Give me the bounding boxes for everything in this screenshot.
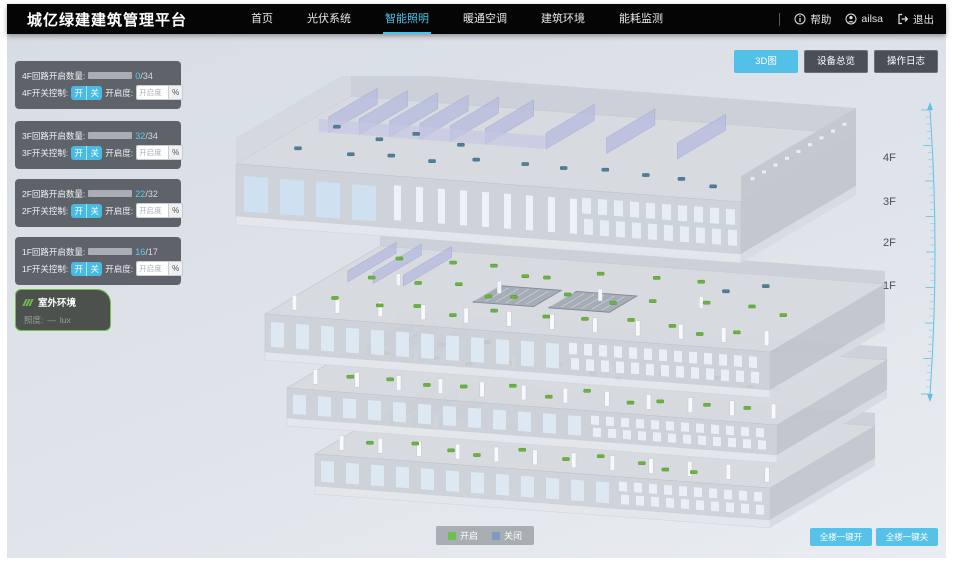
degree-group: %	[136, 85, 183, 100]
leaf-icon	[24, 298, 34, 306]
degree-group: %	[136, 145, 183, 160]
switch-on-button[interactable]: 开	[71, 146, 86, 160]
help-label: 帮助	[810, 12, 831, 27]
floor-scale-slider[interactable]	[915, 100, 943, 404]
main-nav: 首页 光伏系统 智能照明 暖通空调 建筑环境 能耗监测	[249, 4, 665, 34]
floor-label-4f: 4F	[883, 152, 896, 164]
switch-off-button[interactable]: 关	[86, 204, 102, 218]
outdoor-env-title: 室外环境	[38, 295, 76, 309]
open-degree-input[interactable]	[137, 146, 168, 159]
header-right: 帮助 ailsa 退出	[779, 12, 934, 27]
circuit-count-label: 4F回路开启数量:	[22, 70, 85, 82]
percent-button[interactable]: %	[168, 262, 182, 275]
switch-on-button[interactable]: 开	[71, 204, 86, 218]
open-degree-input[interactable]	[137, 204, 168, 217]
app-window: 城亿绿建建筑管理平台 首页 光伏系统 智能照明 暖通空调 建筑环境 能耗监测 帮…	[7, 4, 946, 558]
view-btn-device-overview[interactable]: 设备总览	[804, 50, 868, 73]
user-name: ailsa	[861, 13, 883, 25]
switch-group: 开 关	[71, 146, 102, 160]
app-title: 城亿绿建建筑管理平台	[27, 9, 187, 30]
user-menu[interactable]: ailsa	[845, 13, 883, 25]
light-status-legend: 开启 关闭	[436, 526, 534, 545]
nav-item-pv-system[interactable]: 光伏系统	[305, 4, 353, 34]
circuit-count-value: 22/32	[135, 189, 158, 199]
nav-item-smart-lighting[interactable]: 智能照明	[383, 4, 431, 34]
switch-on-button[interactable]: 开	[71, 262, 86, 276]
switch-control-label: 4F开关控制:	[22, 87, 68, 99]
open-degree-label: 开启度:	[105, 87, 133, 99]
circuit-count-label: 3F回路开启数量:	[22, 130, 85, 142]
logout-icon	[897, 13, 909, 25]
nav-item-hvac[interactable]: 暖通空调	[461, 4, 509, 34]
switch-on-button[interactable]: 开	[71, 86, 86, 100]
switch-group: 开 关	[71, 204, 102, 218]
main-content: 3D图 设备总览 操作日志 4F回路开启数量: 0/34 4F开关控制: 开 关…	[7, 34, 946, 558]
open-degree-label: 开启度:	[105, 263, 133, 275]
circuit-count-label: 1F回路开启数量:	[22, 246, 85, 258]
floor-label-1f: 1F	[883, 280, 896, 292]
switch-off-button[interactable]: 关	[86, 86, 102, 100]
legend-off-label: 关闭	[504, 529, 522, 542]
percent-button[interactable]: %	[168, 204, 182, 217]
nav-item-home[interactable]: 首页	[249, 4, 275, 34]
user-avatar-icon	[845, 13, 857, 25]
circuit-progress-bar	[88, 132, 132, 139]
legend-on-label: 开启	[460, 529, 478, 542]
open-degree-label: 开启度:	[105, 205, 133, 217]
all-off-button[interactable]: 全楼一键关	[876, 528, 938, 546]
switch-group: 开 关	[71, 262, 102, 276]
legend-off-swatch	[492, 532, 500, 540]
open-degree-input[interactable]	[137, 262, 168, 275]
percent-button[interactable]: %	[168, 86, 182, 99]
open-degree-label: 开启度:	[105, 147, 133, 159]
legend-item-off: 关闭	[492, 529, 522, 542]
floor-label-2f: 2F	[883, 237, 896, 249]
switch-off-button[interactable]: 关	[86, 146, 102, 160]
nav-item-building-env[interactable]: 建筑环境	[539, 4, 587, 34]
circuit-count-label: 2F回路开启数量:	[22, 188, 85, 200]
floor-panel-3f: 3F回路开启数量: 32/34 3F开关控制: 开 关 开启度: %	[15, 121, 181, 169]
floor-label-3f: 3F	[883, 196, 896, 208]
all-on-button[interactable]: 全楼一键开	[810, 528, 872, 546]
floor-panel-2f: 2F回路开启数量: 22/32 2F开关控制: 开 关 开启度: %	[15, 179, 181, 227]
help-button[interactable]: 帮助	[794, 12, 831, 27]
floor-panel-4f: 4F回路开启数量: 0/34 4F开关控制: 开 关 开启度: %	[15, 61, 181, 109]
degree-group: %	[136, 203, 183, 218]
view-btn-operation-log[interactable]: 操作日志	[874, 50, 938, 73]
degree-group: %	[136, 261, 183, 276]
bulk-buttons: 全楼一键开 全楼一键关	[810, 528, 938, 546]
legend-item-on: 开启	[448, 529, 478, 542]
switch-control-label: 3F开关控制:	[22, 147, 68, 159]
floor-panel-1f: 1F回路开启数量: 16/17 1F开关控制: 开 关 开启度: %	[15, 237, 181, 285]
circuit-progress-bar	[88, 190, 132, 197]
switch-group: 开 关	[71, 86, 102, 100]
illuminance-unit: lux	[60, 315, 71, 325]
view-btn-3d[interactable]: 3D图	[734, 50, 798, 73]
circuit-count-value: 0/34	[135, 71, 153, 81]
open-degree-input[interactable]	[137, 86, 168, 99]
header: 城亿绿建建筑管理平台 首页 光伏系统 智能照明 暖通空调 建筑环境 能耗监测 帮…	[7, 4, 946, 34]
circuit-count-value: 16/17	[135, 247, 158, 257]
view-buttons: 3D图 设备总览 操作日志	[734, 50, 938, 73]
outdoor-env-panel: 室外环境 照度: — lux	[15, 289, 111, 331]
legend-on-swatch	[448, 532, 456, 540]
illuminance-label: 照度:	[24, 314, 43, 326]
illuminance-value: —	[47, 315, 56, 325]
switch-control-label: 2F开关控制:	[22, 205, 68, 217]
percent-button[interactable]: %	[168, 146, 182, 159]
logout-button[interactable]: 退出	[897, 12, 934, 27]
switch-off-button[interactable]: 关	[86, 262, 102, 276]
circuit-progress-bar	[88, 72, 132, 79]
help-icon	[794, 13, 806, 25]
switch-control-label: 1F开关控制:	[22, 263, 68, 275]
logout-label: 退出	[913, 12, 934, 27]
building-3d-view[interactable]	[209, 76, 909, 546]
circuit-count-value: 32/34	[135, 131, 158, 141]
nav-item-energy[interactable]: 能耗监测	[617, 4, 665, 34]
header-divider	[779, 13, 780, 26]
circuit-progress-bar	[88, 248, 132, 255]
